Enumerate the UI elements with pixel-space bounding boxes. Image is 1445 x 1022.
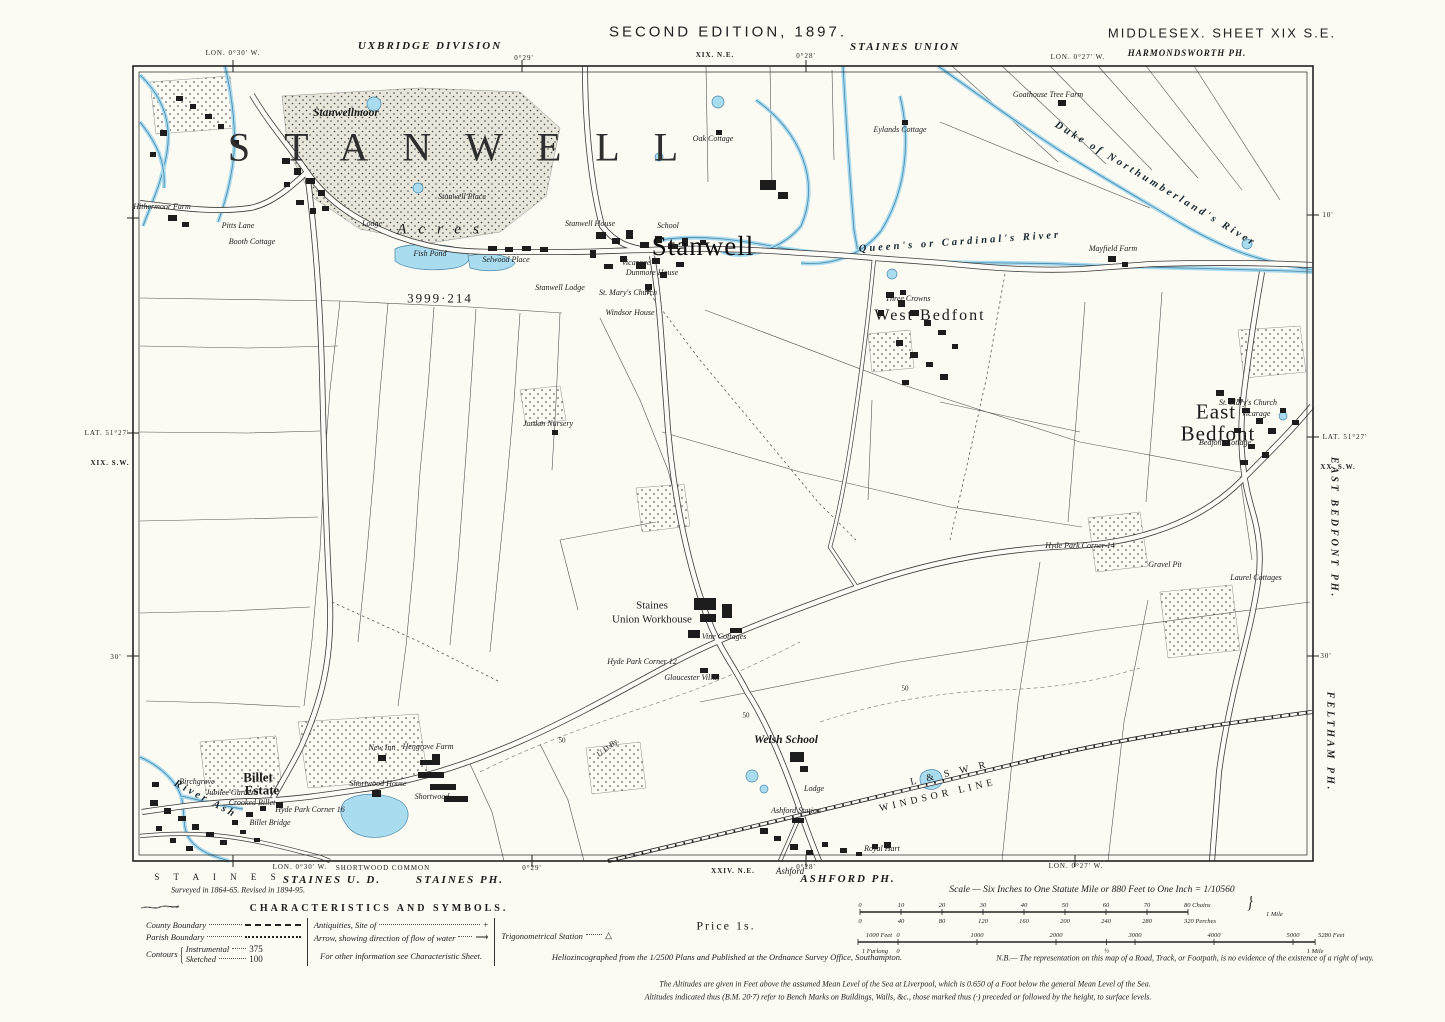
- lat-left: LAT. 51°27': [85, 429, 130, 437]
- svg-text:120: 120: [978, 918, 989, 925]
- edition-title: SECOND EDITION, 1897.: [609, 24, 847, 41]
- svg-text:40: 40: [898, 918, 905, 925]
- parish-feltham-label: FELTHAM PH.: [1325, 692, 1336, 793]
- svg-text:80 Chains: 80 Chains: [1184, 902, 1211, 909]
- legend-county-label: County Boundary: [146, 920, 206, 930]
- lon-28-top: 0°28': [796, 52, 816, 60]
- svg-text:40: 40: [1021, 902, 1028, 909]
- altitude-note-1: The Altitudes are given in Feet above th…: [659, 980, 1150, 989]
- contour-sketched-value: 100: [249, 954, 263, 964]
- lat-right: LAT. 51°27': [1323, 433, 1368, 441]
- lon-30-bottom: LON. 0°30' W.: [273, 863, 328, 871]
- svg-text:3000: 3000: [1128, 932, 1143, 939]
- parish-east-bedfont-label: EAST BEDFONT PH.: [1329, 457, 1340, 599]
- county-sheet-title: MIDDLESEX. SHEET XIX S.E.: [1108, 26, 1336, 41]
- legend-contours-label: Contours: [146, 949, 178, 959]
- ashford-ph-label: ASHFORD PH.: [800, 873, 895, 885]
- svg-text:80: 80: [939, 918, 946, 925]
- flow-arrow-symbol: ⟶: [475, 932, 488, 943]
- lon-27-bottom: LON. 0°27' W.: [1049, 862, 1104, 870]
- svg-text:}: }: [1247, 896, 1253, 914]
- svg-text:240: 240: [1101, 918, 1112, 925]
- legend-trig-label: Trigonometrical Station: [501, 931, 582, 941]
- svg-text:50: 50: [1062, 902, 1069, 909]
- price-label: Price 1s.: [696, 919, 755, 934]
- svg-text:2000: 2000: [1050, 932, 1064, 939]
- contour-instrumental-value: 375: [249, 944, 263, 954]
- svg-text:1 Mile: 1 Mile: [1266, 911, 1283, 918]
- svg-text:0: 0: [896, 932, 900, 939]
- svg-text:320 Perches: 320 Perches: [1183, 918, 1217, 925]
- svg-text:20: 20: [939, 902, 946, 909]
- lon-27-top: LON. 0°27' W.: [1051, 53, 1106, 61]
- svg-text:5000: 5000: [1287, 932, 1301, 939]
- map-sheet: { "header": { "edition": "SECOND EDITION…: [0, 0, 1445, 1022]
- legend-antiquities-label: Antiquities, Site of: [314, 920, 377, 930]
- altitude-note-2: Altitudes indicated thus (B.M. 20·7) ref…: [645, 993, 1152, 1002]
- staines-spaced-label: S T A I N E S: [154, 872, 281, 882]
- county-boundary-symbol: [245, 924, 301, 926]
- sheet-xxiv-label: XXIV. N.E.: [711, 867, 755, 875]
- lon-29-bottom: 0°29': [522, 864, 542, 872]
- lat-10-right: 10': [1322, 211, 1333, 219]
- legend-title: CHARACTERISTICS AND SYMBOLS.: [140, 903, 618, 914]
- staines-ph-label: STAINES PH.: [416, 874, 504, 886]
- sheet-sw-left: XIX. S.W.: [90, 459, 129, 467]
- svg-text:4000: 4000: [1208, 932, 1222, 939]
- parish-boundary-symbol: [245, 936, 301, 938]
- svg-text:10: 10: [898, 902, 905, 909]
- svg-text:70: 70: [1144, 902, 1151, 909]
- antiquities-symbol: +: [483, 920, 488, 930]
- trig-station-symbol: △: [605, 930, 612, 941]
- lat-30-right: 30': [1320, 652, 1331, 660]
- legend-more-info: For other information see Characteristic…: [320, 951, 482, 961]
- nb-note: N.B.— The representation on this map of …: [996, 954, 1374, 963]
- legend-instrumental-label: Instrumental: [186, 944, 229, 954]
- svg-text:280: 280: [1142, 918, 1153, 925]
- svg-text:160: 160: [1019, 918, 1030, 925]
- surveyed-note: Surveyed in 1864-65. Revised in 1894-95.: [171, 886, 305, 895]
- contour-sketched-symbol: [140, 903, 180, 911]
- lon-30-top: LON. 0°30' W.: [206, 49, 261, 57]
- union-label: STAINES UNION: [850, 41, 960, 53]
- heliozincographed-note: Heliozincographed from the 1/2500 Plans …: [552, 952, 902, 962]
- svg-text:200: 200: [1060, 918, 1071, 925]
- lon-28-bottom: 0°28': [796, 863, 816, 871]
- lat-30-left: 30': [110, 653, 121, 661]
- svg-text:5280 Feet: 5280 Feet: [1318, 932, 1344, 939]
- svg-text:1000: 1000: [971, 932, 985, 939]
- svg-text:30: 30: [979, 902, 987, 909]
- sheet-ne-label: XIX. N.E.: [696, 51, 735, 59]
- contours-brace: {: [180, 942, 184, 966]
- svg-text:1000 Feet: 1000 Feet: [866, 932, 892, 939]
- staines-ud-label: STAINES U. D.: [283, 874, 381, 886]
- legend-sketched-label: Sketched: [186, 954, 216, 964]
- shortwood-common-label: SHORTWOOD COMMON: [336, 864, 430, 872]
- legend-parish-label: Parish Boundary: [146, 932, 204, 942]
- lon-29-top: 0°29': [514, 54, 534, 62]
- legend-characteristics: CHARACTERISTICS AND SYMBOLS. County Boun…: [140, 903, 618, 966]
- svg-text:0: 0: [858, 902, 862, 909]
- division-label: UXBRIDGE DIVISION: [358, 40, 502, 52]
- legend-arrow-label: Arrow, showing direction of flow of wate…: [314, 933, 456, 943]
- scale-title: Scale — Six Inches to One Statute Mile o…: [949, 885, 1234, 895]
- svg-text:0: 0: [858, 918, 862, 925]
- svg-text:60: 60: [1103, 902, 1110, 909]
- parish-top-label: HARMONDSWORTH PH.: [1128, 48, 1247, 58]
